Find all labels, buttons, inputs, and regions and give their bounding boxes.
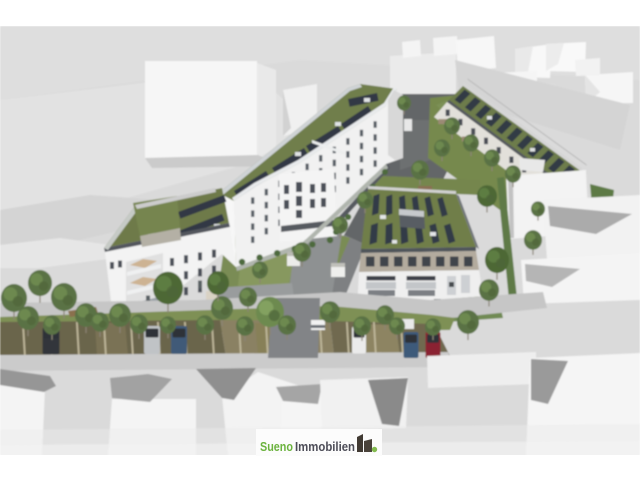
svg-text:Immobilien: Immobilien <box>295 439 355 454</box>
svg-text:Sueno: Sueno <box>260 439 293 454</box>
